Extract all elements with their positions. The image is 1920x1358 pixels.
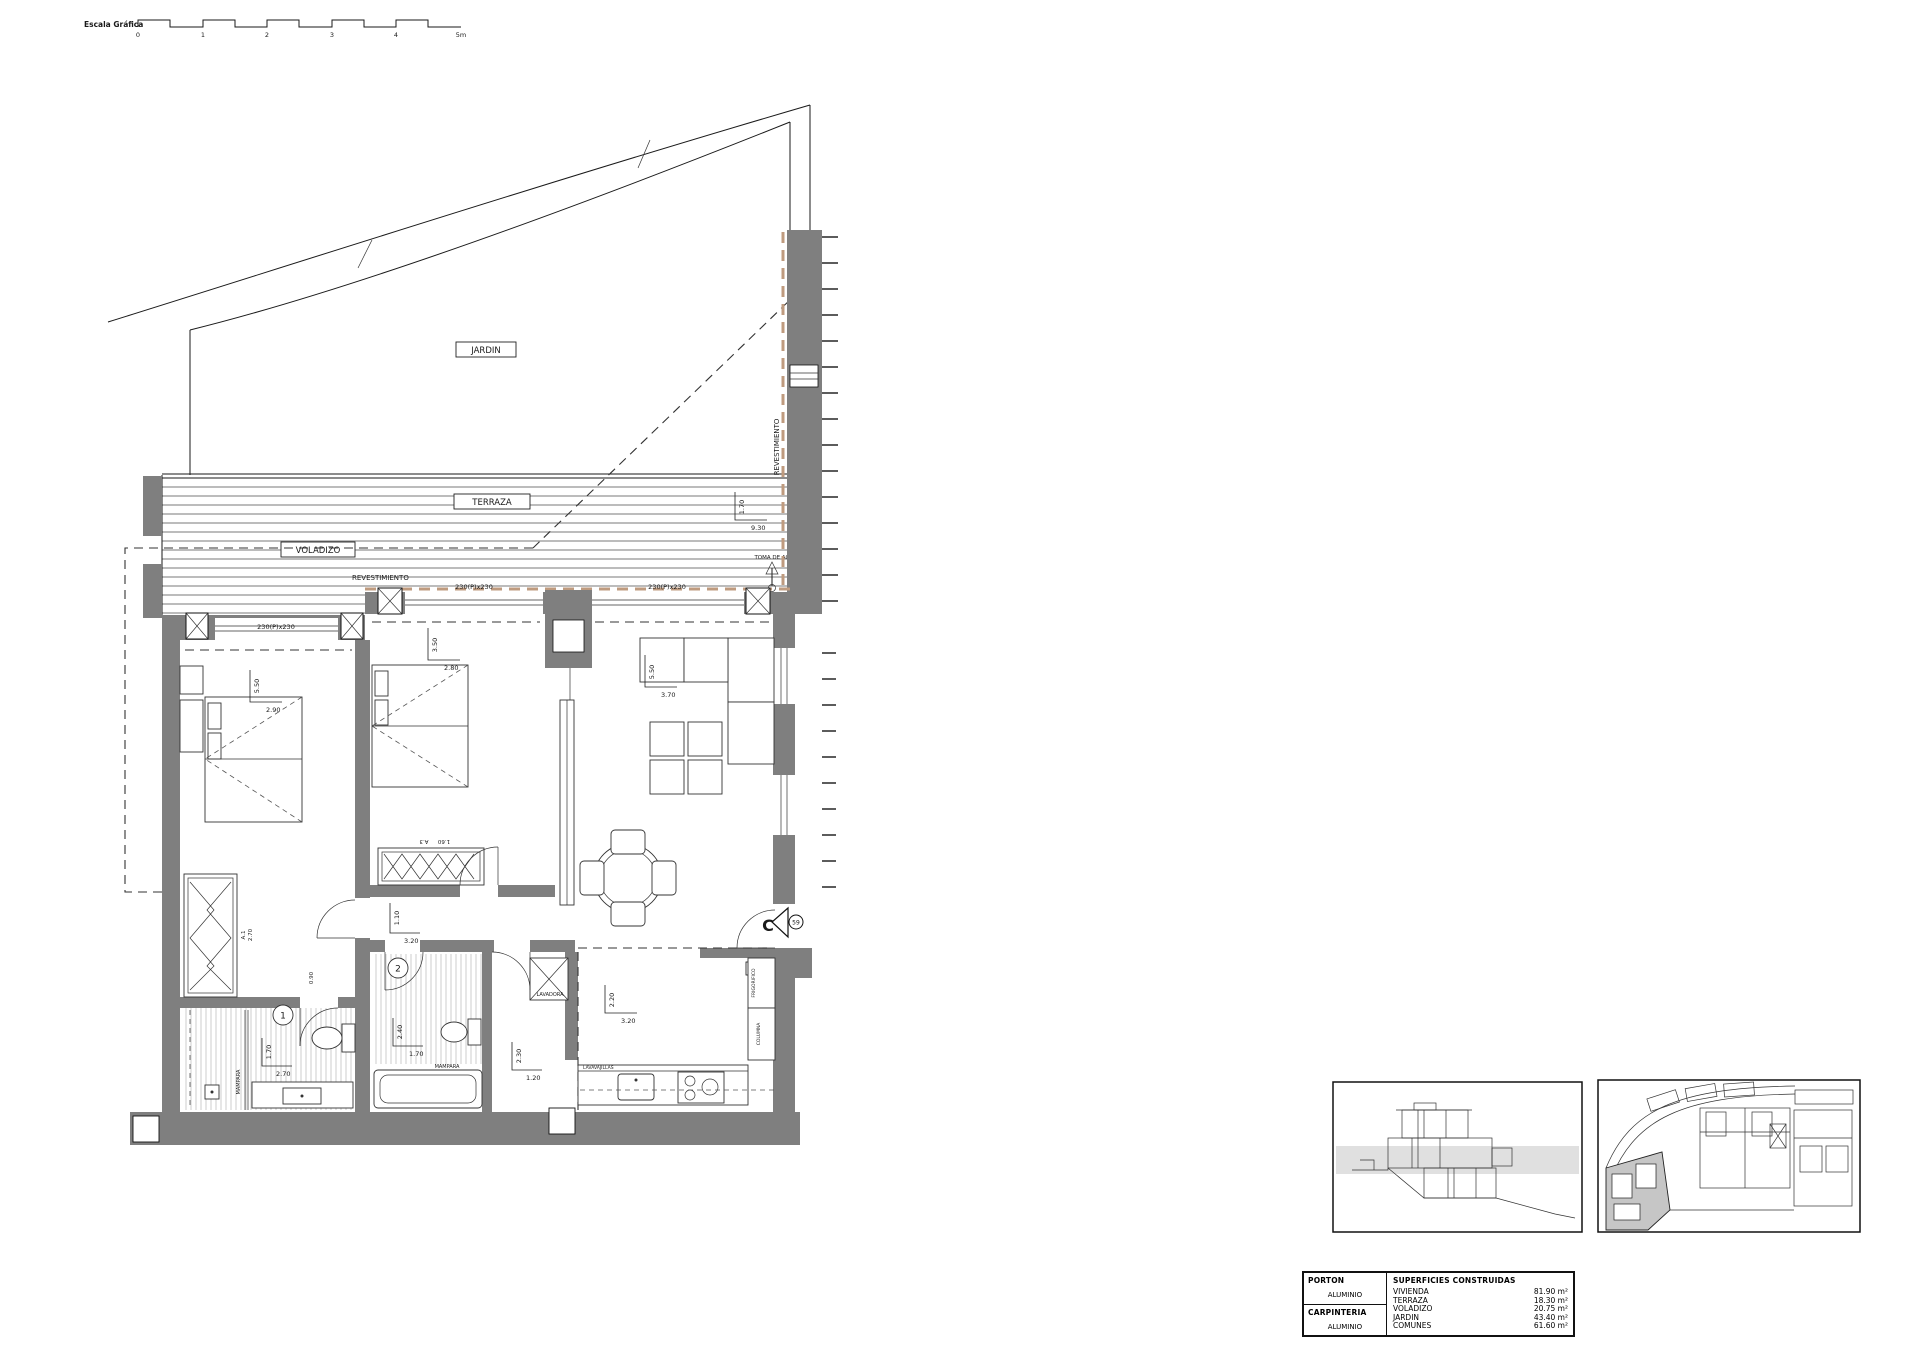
laundry: LAVADORA 2.30 1.20 <box>492 952 568 1082</box>
hall-depth-dim: 1.10 <box>393 911 401 925</box>
window-2-label: 230(P)x230 <box>455 583 493 591</box>
bathroom-2: MAMPARA 2 2.40 1.70 <box>374 952 482 1108</box>
wardrobe-a3-width: 1.60 <box>437 838 450 844</box>
section-number: 59 <box>792 920 800 927</box>
bath1-depth-dim: 1.70 <box>265 1045 273 1059</box>
section-thumbnail <box>1333 1082 1582 1232</box>
terraza-label: TERRAZA <box>471 498 512 508</box>
mampara-1-label: MAMPARA <box>236 1069 242 1094</box>
tall-units: FRIGORIFICO COLUMNA <box>748 958 775 1060</box>
carpinteria-title: CARPINTERIA <box>1308 1308 1382 1317</box>
site-boundary <box>108 105 810 475</box>
bedroom2-width-dim: 2.80 <box>444 664 458 672</box>
bath2-depth-dim: 2.40 <box>396 1025 404 1039</box>
nightstand <box>180 700 203 752</box>
terrace-width-dim: 9.30 <box>751 524 765 532</box>
bedroom-1: A.1 2.70 5.50 2.90 <box>180 666 355 997</box>
pillar-icon <box>378 588 402 614</box>
lavadora-label: LAVADORA <box>537 992 565 998</box>
bath2-width-dim: 1.70 <box>409 1050 423 1058</box>
section-letter: C <box>762 916 774 935</box>
bedroom2-depth-dim: 3.50 <box>431 638 439 652</box>
jardin-label: JARDIN <box>470 346 501 356</box>
wardrobe-a1-width: 2.70 <box>248 928 254 941</box>
surface-summary-table: PORTON ALUMINIO CARPINTERIA ALUMINIO SUP… <box>1302 1271 1575 1337</box>
lavavajillas-label: LAVAVAJILLAS <box>583 1065 614 1071</box>
mampara-2-label: MAMPARA <box>435 1064 460 1070</box>
bed-double <box>372 665 468 787</box>
coffee-tables <box>650 722 722 794</box>
scale-tick-0: 0 <box>136 31 140 39</box>
entry-marker: C 59 <box>762 908 803 937</box>
hall-dims: 1.10 3.20 <box>390 903 420 945</box>
revestimiento-top-label: REVESTIMIENTO <box>352 574 409 582</box>
scale-tick-1: 1 <box>201 31 205 39</box>
window-1-label: 230(P)x230 <box>257 623 295 631</box>
pillar-icon <box>341 613 363 639</box>
window-3-label: 230(P)x230 <box>648 583 686 591</box>
bathroom-1: MAMPARA 1 1.70 2.70 <box>182 1005 355 1110</box>
living-width-dim: 3.70 <box>661 691 675 699</box>
kitchen-width-dim: 3.20 <box>621 1017 635 1025</box>
living-depth-dim: 5.50 <box>648 665 656 679</box>
materials-column: PORTON ALUMINIO CARPINTERIA ALUMINIO <box>1304 1273 1387 1335</box>
columna-label: COLUMNA <box>756 1022 762 1046</box>
dining-table <box>580 830 676 926</box>
bedroom1-depth-dim: 5.50 <box>253 679 261 693</box>
bedroom-2: A.3 1.60 3.50 2.80 <box>372 628 498 885</box>
sink <box>618 1074 654 1100</box>
scale-tick-5: 5m <box>456 31 466 39</box>
porton-cell: PORTON ALUMINIO <box>1304 1273 1386 1304</box>
scale-tick-4: 4 <box>394 31 398 39</box>
bath1-width-dim: 2.70 <box>276 1070 290 1078</box>
hall-width-dim: 3.20 <box>404 937 418 945</box>
door-width-dim: 0.90 <box>309 971 315 984</box>
kitchen-dims: 2.20 3.20 <box>605 985 637 1025</box>
bedroom1-width-dim: 2.90 <box>266 706 280 714</box>
terrace-left-wall-stub <box>143 476 162 536</box>
surface-value: 61.60 m² <box>1534 1322 1568 1331</box>
surface-label: COMUNES <box>1393 1322 1431 1331</box>
siteplan-thumbnail <box>1598 1080 1860 1232</box>
architectural-floorplan-sheet: Escala Gráfica 0 1 2 3 4 5m JARDIN TERRA… <box>0 0 1920 1358</box>
terrace-left-wall-stub-2 <box>143 564 162 618</box>
door-swing-arc <box>317 900 355 938</box>
kitchen-counter <box>578 1065 775 1105</box>
scale-bar: Escala Gráfica 0 1 2 3 4 5m <box>84 20 466 39</box>
scale-bar-label: Escala Gráfica <box>84 20 143 29</box>
nightstand <box>180 666 203 694</box>
porton-title: PORTON <box>1308 1276 1382 1285</box>
pillar-icon <box>186 613 208 639</box>
floor-plan-drawing: Escala Gráfica 0 1 2 3 4 5m JARDIN TERRA… <box>0 0 1920 1358</box>
laundry-depth-dim: 2.30 <box>515 1049 523 1063</box>
carpinteria-cell: CARPINTERIA ALUMINIO <box>1304 1304 1386 1336</box>
surfaces-header: SUPERFICIES CONSTRUIDAS <box>1393 1276 1568 1285</box>
bath2-number: 2 <box>395 965 401 975</box>
scale-tick-3: 3 <box>330 31 334 39</box>
scale-tick-2: 2 <box>265 31 269 39</box>
frigorifico-label: FRIGORIFICO <box>751 968 757 998</box>
wardrobe-a1: A.1 2.70 <box>184 874 254 997</box>
pillar-icon <box>746 588 770 614</box>
terrace-depth-dim: 1.70 <box>738 500 746 514</box>
laundry-width-dim: 1.20 <box>526 1074 540 1082</box>
carpinteria-material: ALUMINIO <box>1308 1323 1382 1331</box>
vanity <box>252 1082 353 1108</box>
hob <box>678 1072 724 1103</box>
bath1-number: 1 <box>280 1012 286 1022</box>
laundry-dims: 2.30 1.20 <box>512 1042 542 1082</box>
right-exterior-wall: REVESTIMIENTO <box>773 230 838 614</box>
door-swing-arc <box>492 952 530 990</box>
bathtub <box>374 1070 482 1108</box>
surfaces-column: SUPERFICIES CONSTRUIDAS VIVIENDA 81.90 m… <box>1387 1273 1573 1335</box>
kitchen: LAVAVAJILLAS FRIGORIFICO COLUMNA 2.20 3.… <box>578 948 775 1110</box>
living-dining: 5.50 3.70 C 59 <box>560 638 803 948</box>
revestimiento-right-label: REVESTIMIENTO <box>773 418 781 475</box>
wardrobe-a3-label: A.3 <box>419 838 428 844</box>
wardrobe-a1-label: A.1 <box>241 931 247 940</box>
bed-double <box>205 697 302 822</box>
porton-material: ALUMINIO <box>1308 1291 1382 1299</box>
surface-row: COMUNES 61.60 m² <box>1393 1322 1568 1331</box>
garden: JARDIN <box>456 342 516 357</box>
kitchen-depth-dim: 2.20 <box>608 993 616 1007</box>
